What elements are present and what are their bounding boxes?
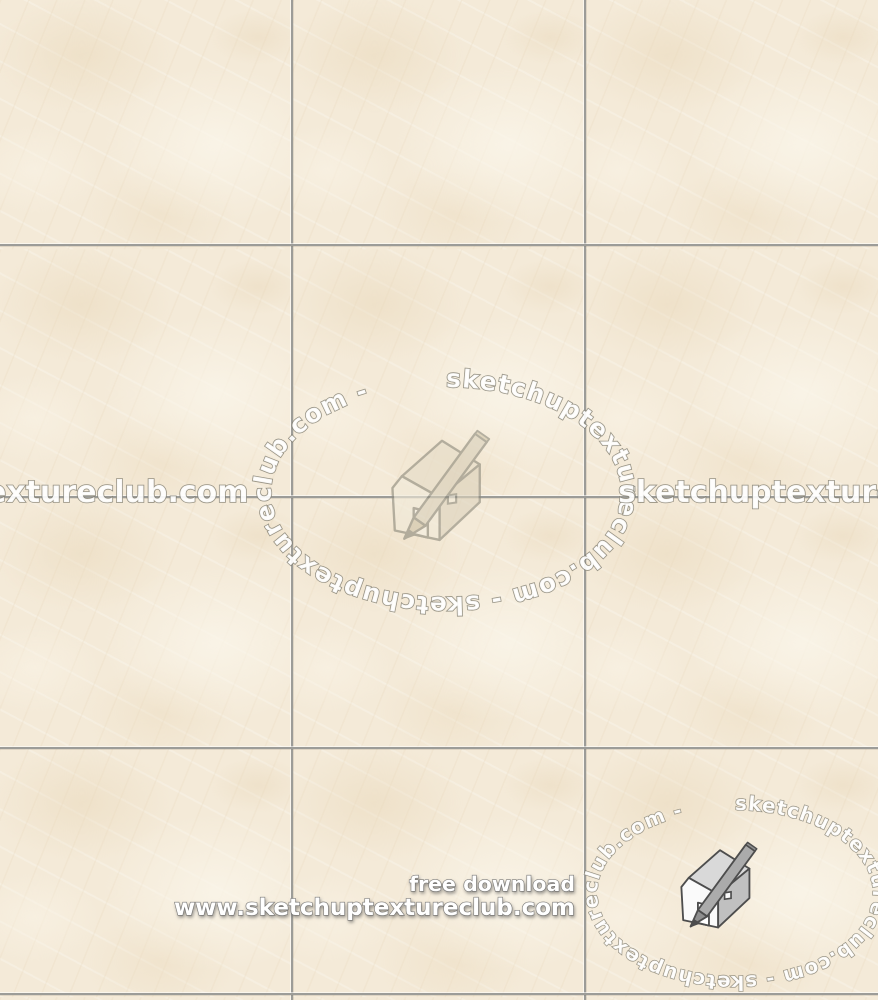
free-download-label: free download [409,872,575,896]
svg-text:sketchuptextureclub.com: sketchuptextureclub.com [0,475,249,510]
grout-line-horizontal-1 [0,244,878,246]
svg-text:sketchuptextureclub.com: sketchuptextureclub.com [618,475,878,510]
free-download-caption: free download www.sketchuptextureclub.co… [163,870,583,924]
site-url-label: www.sketchuptextureclub.com [174,895,575,921]
sketchup-logo-icon [681,842,756,927]
watermark-text-left: sketchuptextureclub.com [0,466,368,512]
grout-line-horizontal-3 [0,747,878,749]
watermark-ellipse-bottom-right: sketchuptextureclub.com - sketchuptextur… [585,798,878,988]
marble-tile-texture: sketchuptextureclub.com - sketchuptextur… [0,0,878,1000]
sketchup-logo-icon [392,431,489,540]
watermark-text-right: sketchuptextureclub.com [618,466,878,512]
